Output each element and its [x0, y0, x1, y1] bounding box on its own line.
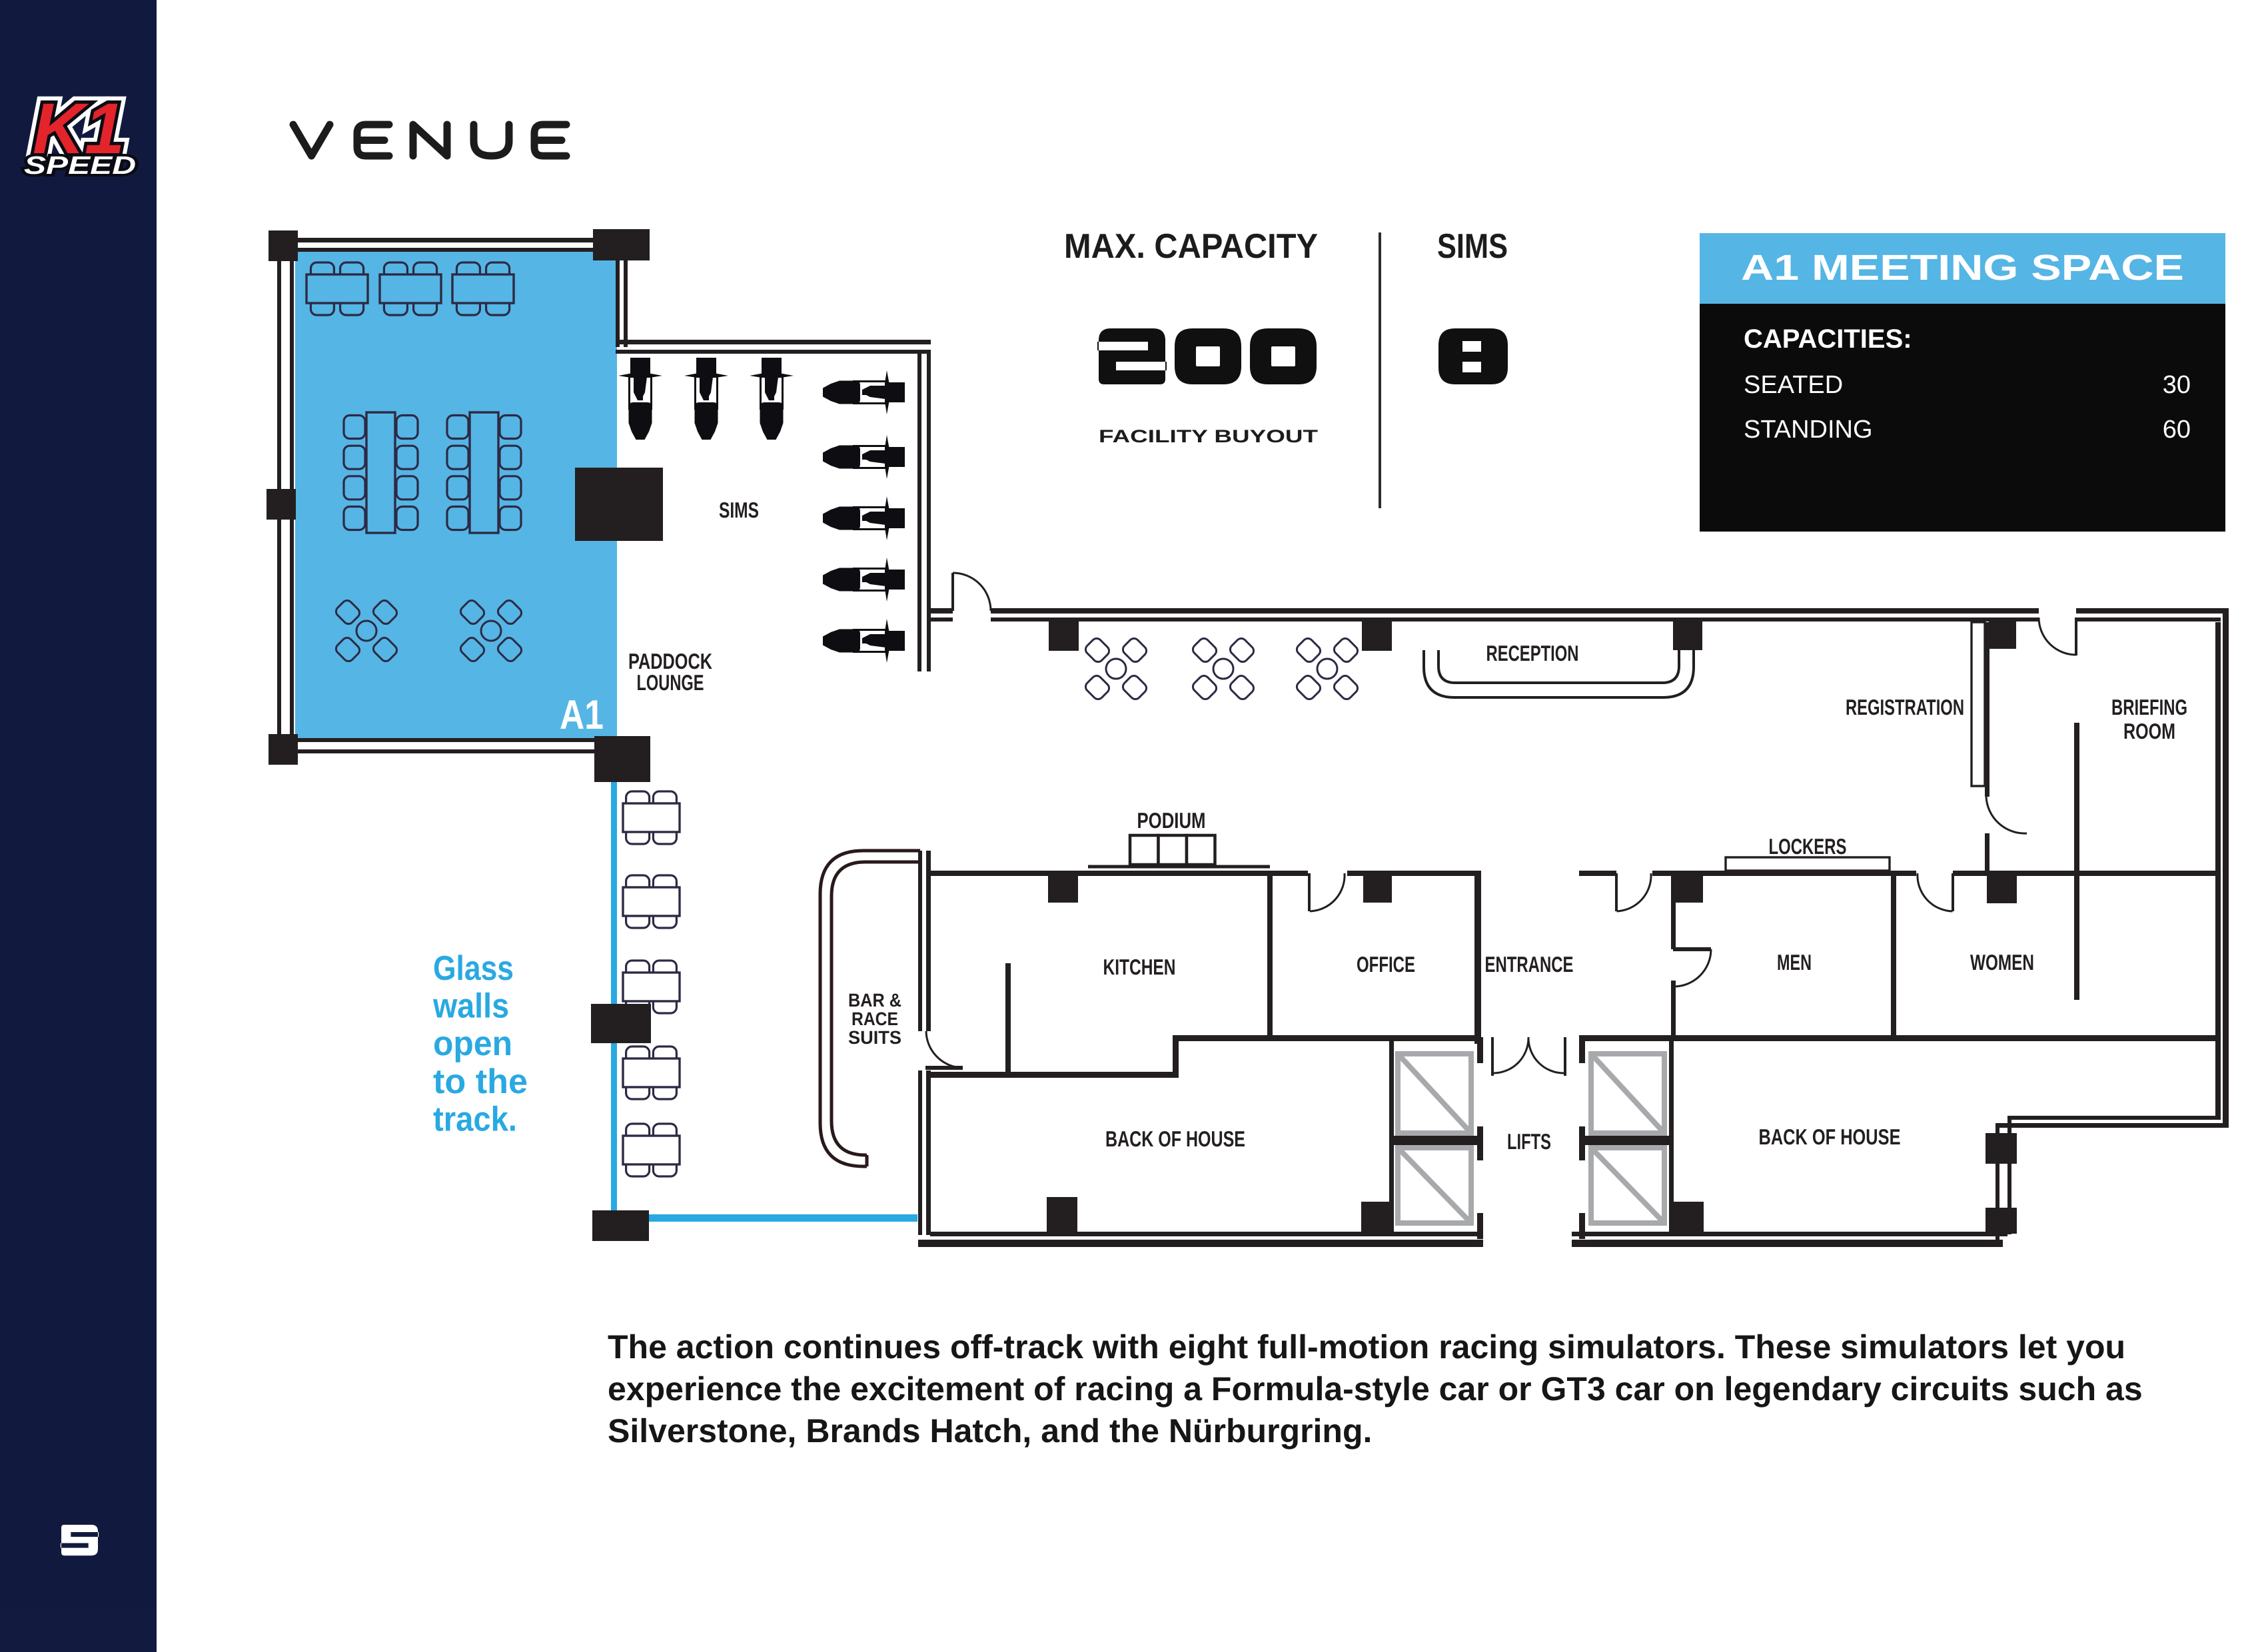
svg-text:LOUNGE: LOUNGE	[637, 670, 704, 695]
svg-text:to the: to the	[433, 1062, 528, 1101]
svg-text:ROOM: ROOM	[2123, 719, 2175, 743]
svg-text:A1: A1	[560, 692, 604, 738]
svg-text:open: open	[433, 1025, 512, 1063]
svg-text:BAR &: BAR &	[848, 990, 901, 1011]
svg-text:BACK OF HOUSE: BACK OF HOUSE	[1105, 1126, 1245, 1151]
svg-text:Glass: Glass	[433, 949, 514, 988]
svg-text:30: 30	[2163, 371, 2191, 399]
svg-text:CAPACITIES:: CAPACITIES:	[1744, 324, 1912, 354]
svg-text:STANDING: STANDING	[1744, 416, 1873, 444]
svg-text:60: 60	[2163, 416, 2191, 444]
svg-text:MEN: MEN	[1777, 950, 1812, 975]
svg-text:RACE: RACE	[851, 1009, 898, 1029]
svg-text:FACILITY BUYOUT: FACILITY BUYOUT	[1099, 426, 1319, 446]
svg-text:A1 MEETING SPACE: A1 MEETING SPACE	[1741, 248, 2184, 288]
svg-text:REGISTRATION: REGISTRATION	[1846, 695, 1964, 719]
svg-text:track.: track.	[433, 1100, 517, 1138]
svg-text:OFFICE: OFFICE	[1357, 952, 1415, 977]
svg-text:MAX. CAPACITY: MAX. CAPACITY	[1064, 227, 1318, 266]
svg-text:SUITS: SUITS	[848, 1027, 901, 1048]
svg-text:LIFTS: LIFTS	[1507, 1129, 1551, 1154]
svg-text:RECEPTION: RECEPTION	[1486, 641, 1579, 665]
svg-text:WOMEN: WOMEN	[1970, 950, 2034, 975]
svg-text:SIMS: SIMS	[719, 498, 759, 522]
svg-text:SPEED: SPEED	[24, 152, 136, 180]
svg-text:SIMS: SIMS	[1437, 227, 1508, 266]
svg-text:SEATED: SEATED	[1744, 371, 1843, 399]
svg-text:ENTRANCE: ENTRANCE	[1485, 952, 1574, 977]
svg-text:KITCHEN: KITCHEN	[1103, 955, 1176, 979]
svg-text:PODIUM: PODIUM	[1137, 808, 1206, 833]
svg-text:walls: walls	[432, 987, 509, 1026]
svg-text:BACK OF HOUSE: BACK OF HOUSE	[1759, 1124, 1901, 1149]
svg-text:LOCKERS: LOCKERS	[1769, 834, 1847, 859]
svg-text:BRIEFING: BRIEFING	[2111, 695, 2187, 719]
